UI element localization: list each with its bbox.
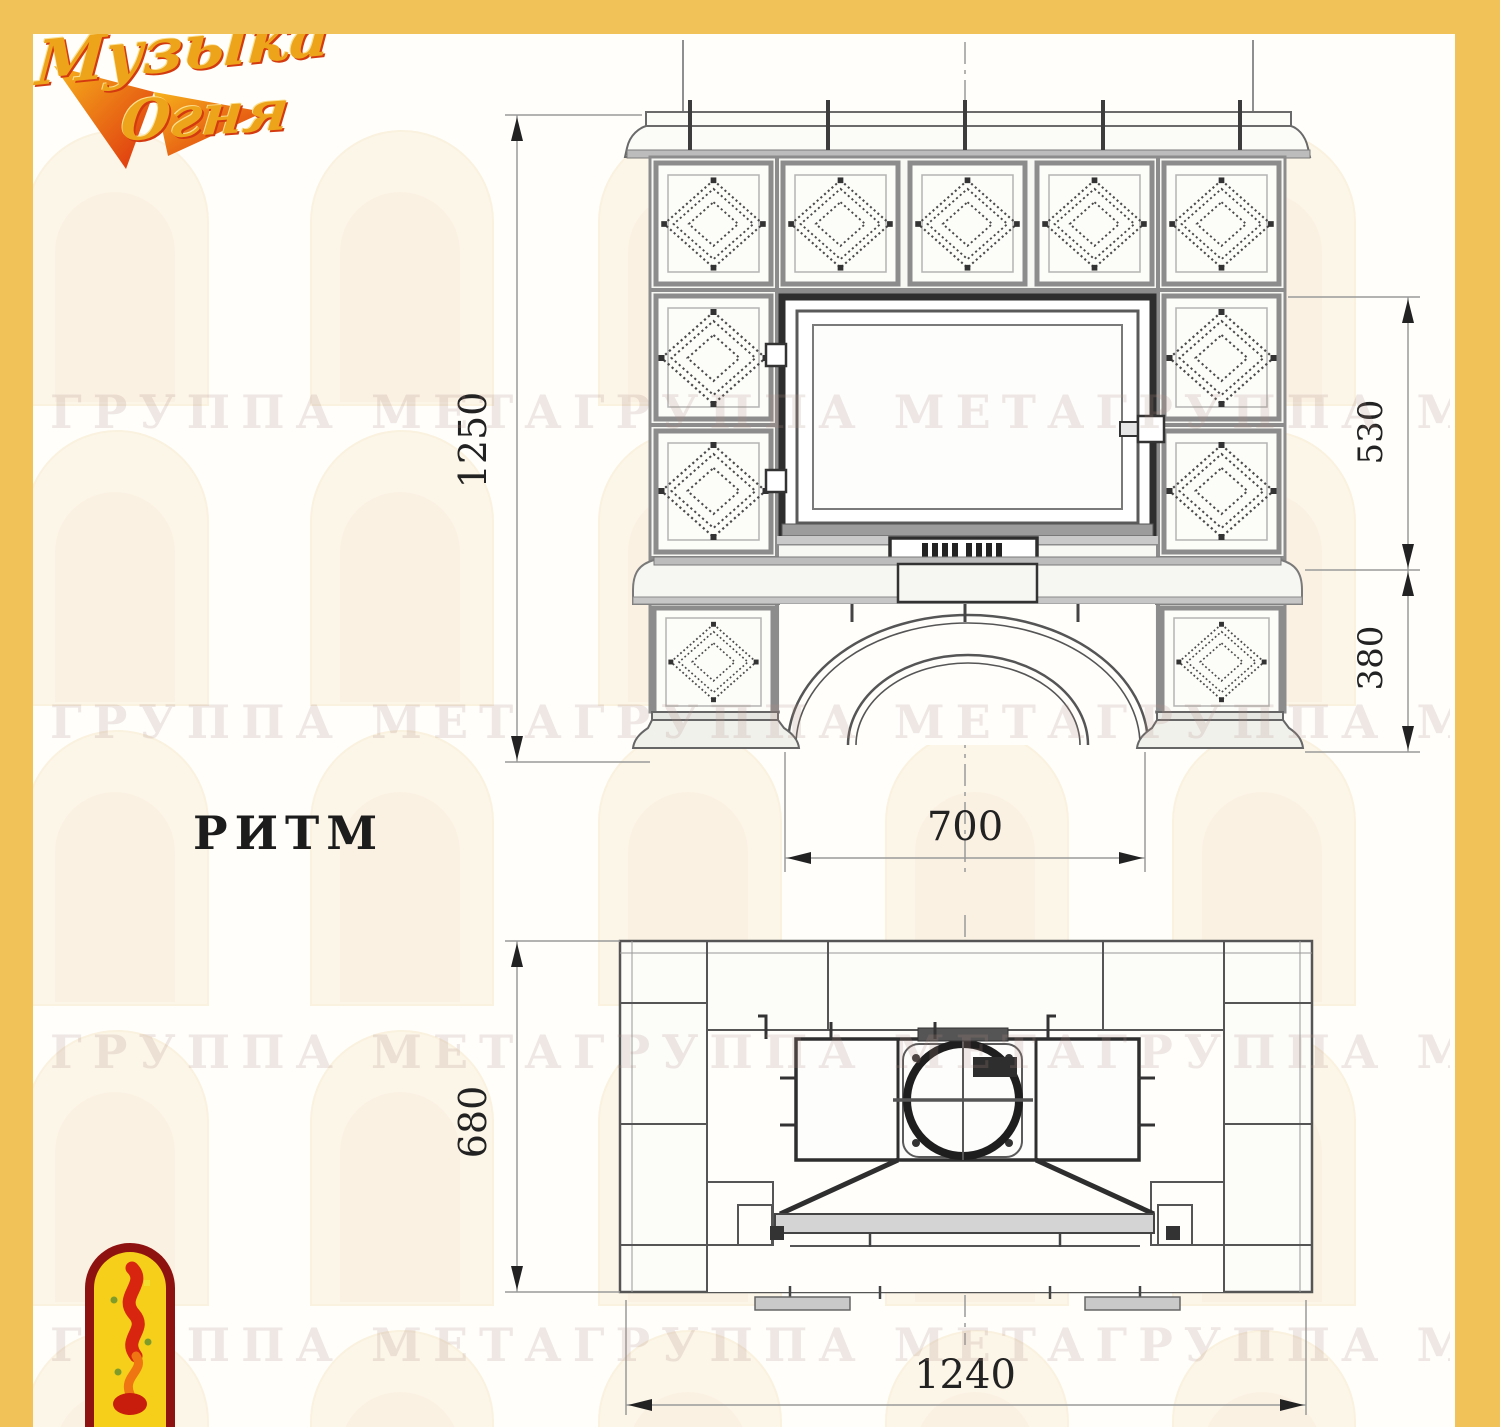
svg-text:700: 700: [927, 804, 1003, 850]
chimney-projection-lines: [683, 40, 1253, 113]
svg-text:680: 680: [451, 1086, 495, 1159]
frame-border-right: [1455, 0, 1500, 1427]
insert-front-slab: [775, 1214, 1154, 1233]
watermark-row: ГРУППА МЕТАГРУППА МЕТАГРУППА МЕТА: [50, 1318, 1450, 1372]
flame-figure-icon: [94, 1252, 166, 1427]
frame-border-left: [0, 0, 33, 1427]
watermark-row: ГРУППА МЕТАГРУППА МЕТАГРУППА МЕТА: [50, 1025, 1450, 1079]
svg-text:380: 380: [1351, 626, 1391, 691]
plan-feet-pads: [755, 1297, 1180, 1310]
dimension-680: 680: [451, 941, 620, 1292]
crown-cornice: [625, 100, 1310, 158]
top-tile-row: [656, 163, 1279, 284]
front-view: 1250 530 380: [451, 40, 1420, 878]
logo-word-2: Огня: [118, 82, 291, 149]
watermark-row: ГРУППА МЕТАГРУППА МЕТАГРУППА МЕТА: [50, 385, 1450, 439]
frame-border-top: [0, 0, 1500, 34]
insert-plinth: [898, 564, 1037, 602]
drawing-sheet: ГРУППА МЕТАГРУППА МЕТАГРУППА МЕТА ГРУППА…: [0, 0, 1500, 1427]
flame-emblem: [85, 1243, 175, 1427]
watermark-row: ГРУППА МЕТАГРУППА МЕТАГРУППА МЕТА: [50, 695, 1450, 749]
door-sill: [782, 524, 1153, 536]
model-label: РИТМ: [193, 806, 384, 860]
mantel-shelf: [633, 557, 1302, 604]
